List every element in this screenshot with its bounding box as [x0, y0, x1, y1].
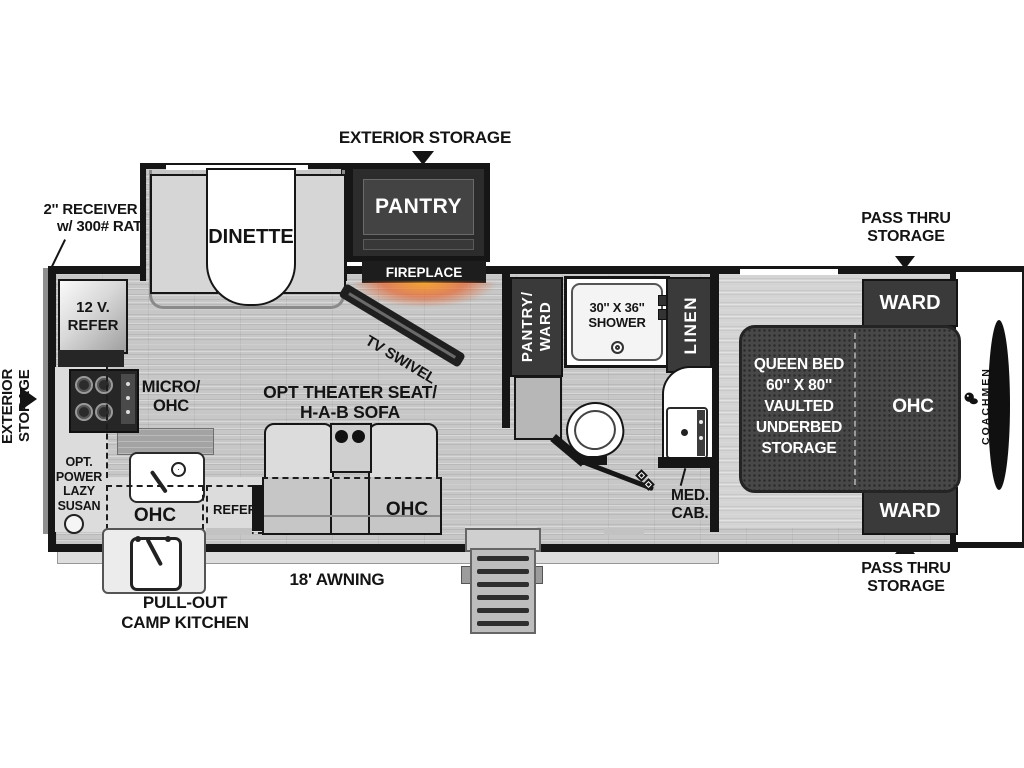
- refer-12v-line1: 12 V.: [76, 299, 110, 316]
- burner: [75, 403, 93, 421]
- vanity-sink: [666, 407, 708, 459]
- seat-divider: [330, 479, 332, 533]
- pantry-label: PANTRY: [375, 195, 462, 219]
- arrow-right-icon: [20, 387, 37, 411]
- pantry-ward-closet: PANTRY/ WARD: [510, 277, 563, 377]
- linen-closet: LINEN: [666, 277, 716, 373]
- exterior-storage-top-label: EXTERIOR STORAGE: [330, 128, 520, 147]
- camp-kitchen-label: PULL-OUT CAMP KITCHEN: [95, 593, 275, 634]
- step-tread: [477, 621, 529, 626]
- fireplace: FIREPLACE: [362, 261, 486, 283]
- seat-divider: [368, 479, 370, 533]
- shower-drain: [611, 341, 624, 354]
- bedroom-window: [740, 269, 838, 275]
- vanity-base-wall: [658, 457, 714, 468]
- camp-kitchen: [102, 528, 206, 594]
- step-tread: [477, 569, 529, 574]
- med-cab-label: MED. CAB.: [662, 487, 718, 522]
- pantry-slide: PANTRY: [347, 163, 490, 262]
- faucet-handle: [146, 538, 163, 566]
- lazy-susan-circle: [64, 514, 84, 534]
- wall-vent: [206, 528, 252, 535]
- burner: [95, 403, 113, 421]
- knob: [126, 410, 130, 414]
- pantry-cabinet: PANTRY: [363, 179, 474, 235]
- floorplan: EXTERIOR STORAGE 2'' RECEIVER PREP w/ 30…: [0, 0, 1024, 768]
- exterior-storage-left-label: EXTERIOR STORAGE: [0, 332, 20, 480]
- awning-label: 18' AWNING: [272, 570, 402, 589]
- shower: 30'' X 36'' SHOWER: [564, 276, 670, 368]
- faucet-dot: [165, 536, 171, 542]
- cabinet-strip: [58, 350, 124, 367]
- shower-label: 30'' X 36'' SHOWER: [567, 301, 667, 331]
- knob: [126, 396, 130, 400]
- step-tread: [477, 556, 529, 561]
- ward-bottom: WARD: [862, 487, 958, 535]
- lazy-susan-label: OPT. POWER LAZY SUSAN: [50, 455, 108, 513]
- refer-12v-line2: REFER: [68, 317, 119, 334]
- burner: [75, 376, 93, 394]
- entry-steps: [470, 548, 536, 634]
- ward-top: WARD: [862, 279, 958, 327]
- vanity-drain: [681, 429, 688, 436]
- step-tread: [477, 608, 529, 613]
- bed-ohc-label: OHC: [870, 396, 956, 417]
- kitchen-ohc-zone: OHC: [106, 485, 204, 530]
- toilet-seat: [570, 406, 619, 454]
- sofa-back-right: [368, 423, 438, 485]
- dinette-label: DINETTE: [208, 226, 294, 249]
- burner: [95, 376, 113, 394]
- vanity-faucet: [697, 410, 705, 456]
- bath-wall-left: [502, 274, 510, 428]
- pass-thru-top-label: PASS THRU STORAGE: [850, 210, 962, 246]
- fireplace-label: FIREPLACE: [386, 265, 463, 280]
- pass-thru-bottom-label: PASS THRU STORAGE: [850, 560, 962, 596]
- step-tread: [477, 582, 529, 587]
- sofa-ohc-label: OHC: [376, 499, 438, 521]
- faucet-dot: [699, 436, 703, 440]
- cupholder: [352, 430, 365, 443]
- faucet-dot: [135, 536, 141, 542]
- cooktop: [69, 369, 139, 433]
- sofa-side-wall: [252, 485, 262, 531]
- faucet-dot: [699, 420, 703, 424]
- counter-dashed-line: [106, 366, 108, 478]
- sofa-seat-base: OHC: [262, 477, 442, 535]
- coachmen-logo-icon: [962, 390, 980, 408]
- knob: [126, 382, 130, 386]
- brand-name: COACHMEN: [980, 360, 994, 452]
- sofa-back-left: [264, 423, 334, 485]
- front-cap: COACHMEN: [950, 266, 1024, 548]
- wall-vent: [604, 528, 644, 535]
- dinette-table: DINETTE: [206, 168, 296, 306]
- camp-kitchen-sink: [130, 537, 182, 591]
- cupholder: [335, 430, 348, 443]
- pantry-lower-shelf: [363, 239, 474, 250]
- micro-ohc-label: MICRO/ OHC: [131, 378, 211, 417]
- faucet: [171, 462, 186, 477]
- step-tread: [477, 595, 529, 600]
- queen-bed: QUEEN BED 60'' X 80'' VAULTED UNDERBED S…: [739, 325, 961, 493]
- bed-fold-line: [854, 333, 856, 485]
- sofa-console: [330, 423, 372, 473]
- queen-bed-label: QUEEN BED 60'' X 80'' VAULTED UNDERBED S…: [745, 354, 853, 459]
- refrigerator-12v: 12 V. REFER: [58, 279, 128, 354]
- bath-cabinet: [514, 376, 562, 440]
- theater-seat-label: OPT THEATER SEAT/ H-A-B SOFA: [250, 383, 450, 423]
